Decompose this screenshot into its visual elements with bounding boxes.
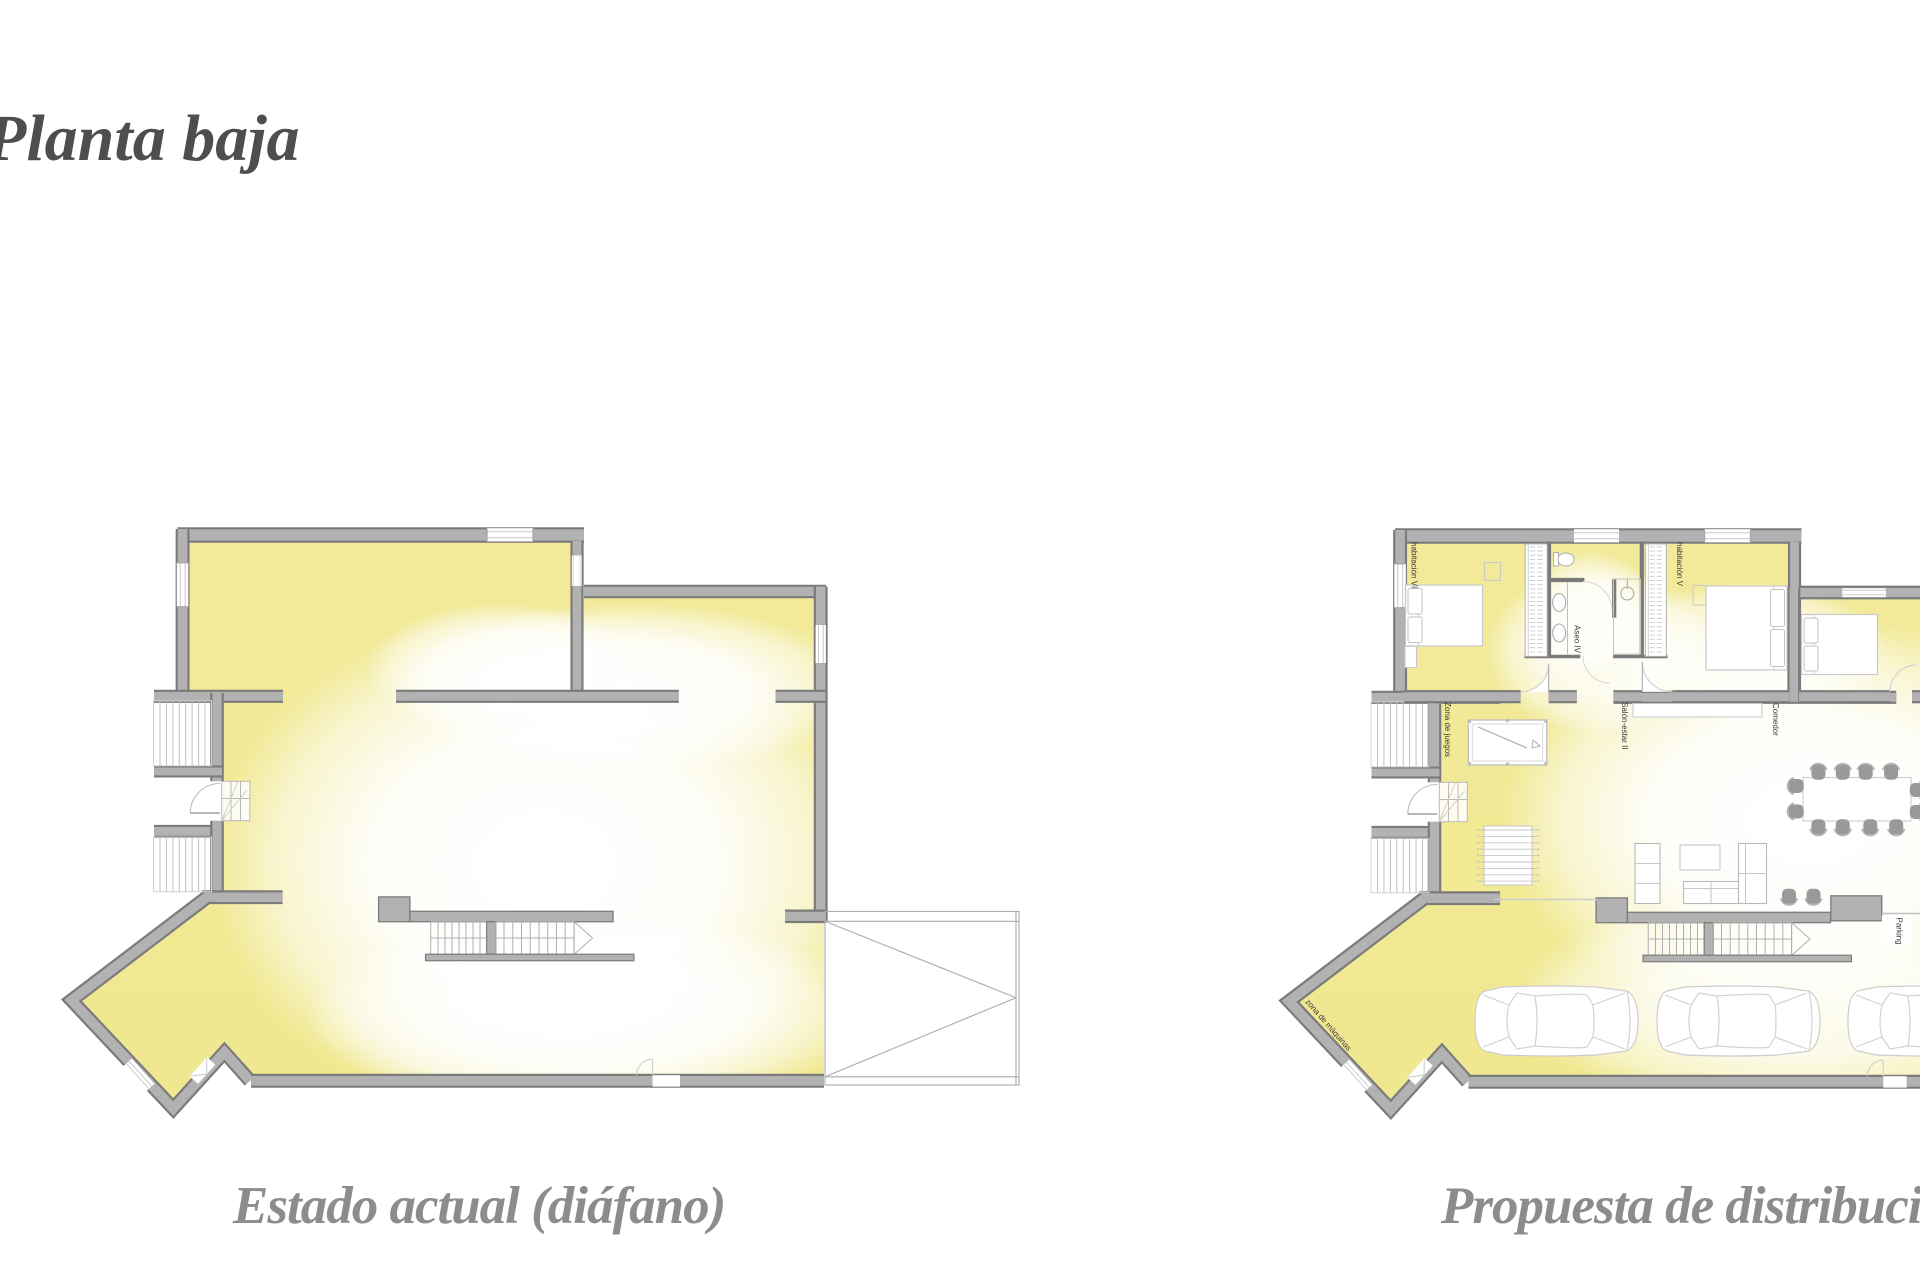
svg-text:Parking: Parking — [1895, 918, 1904, 945]
svg-text:Aseo IV: Aseo IV — [1573, 625, 1582, 654]
svg-text:Zona de juegos: Zona de juegos — [1443, 702, 1452, 757]
svg-text:habitación VI: habitación VI — [1410, 542, 1419, 588]
svg-text:Comedor: Comedor — [1771, 703, 1780, 736]
svg-text:Salón-estar II: Salón-estar II — [1620, 702, 1629, 750]
svg-text:habitación V: habitación V — [1675, 542, 1684, 587]
